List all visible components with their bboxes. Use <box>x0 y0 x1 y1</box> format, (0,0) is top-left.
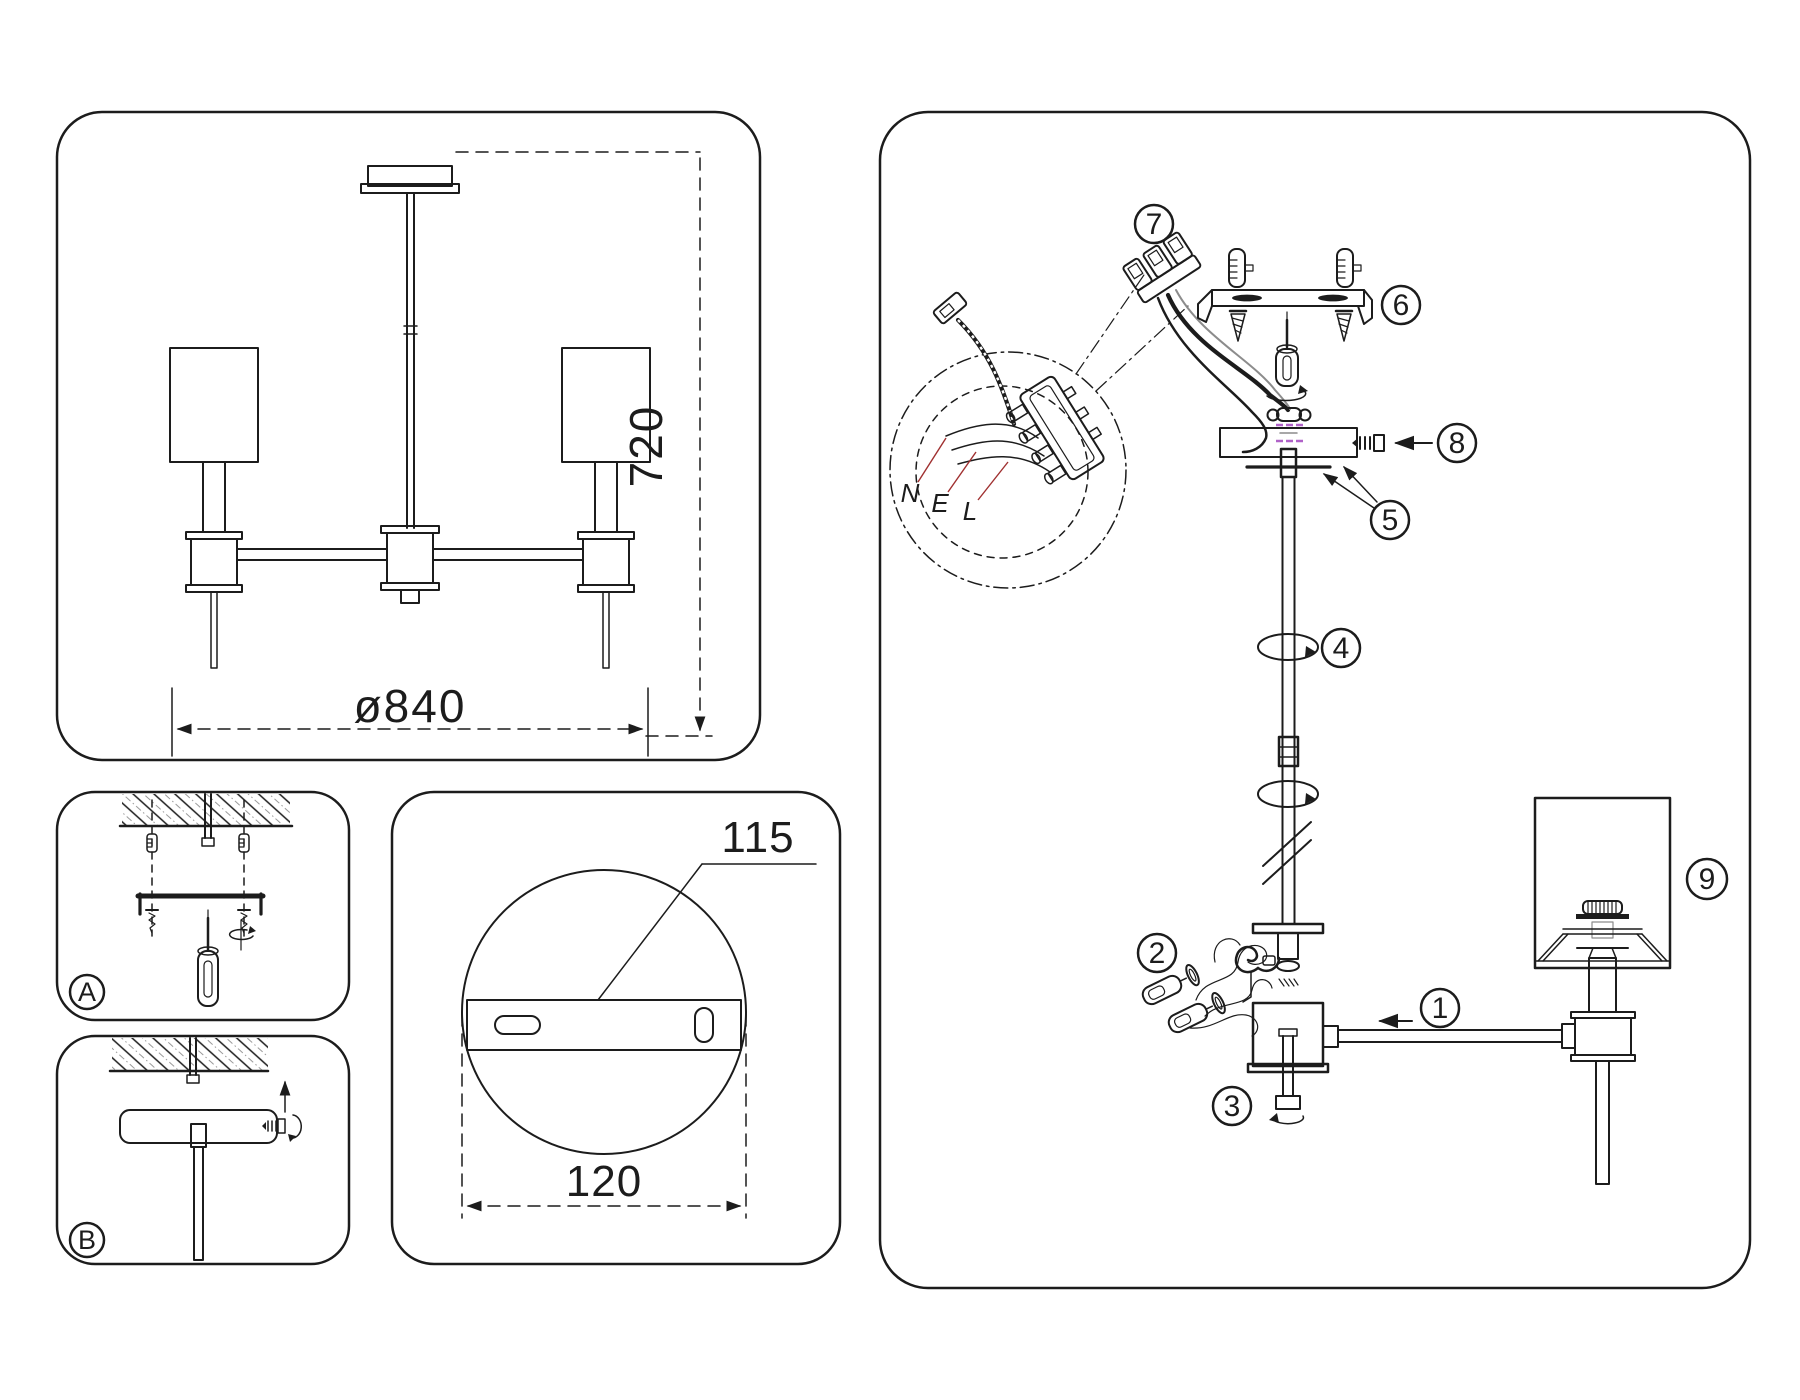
wall-anchor-icon <box>147 834 157 852</box>
hanger-rod: 4 <box>1253 478 1360 986</box>
dimension-height: 720 <box>456 152 712 736</box>
callout-2-label: 2 <box>1149 937 1166 970</box>
detail-circle-inner <box>916 386 1088 558</box>
side-screw-icon <box>262 1115 301 1142</box>
arm-connector <box>1562 1024 1575 1048</box>
hub-bolt <box>1276 1096 1300 1109</box>
lamp-shade-left <box>170 348 258 462</box>
callout-1-label: 1 <box>1432 992 1449 1025</box>
slot-hole-left <box>495 1016 540 1034</box>
rotation-arrow-icon <box>1258 781 1318 807</box>
rod-break <box>1263 822 1311 866</box>
step-b-label: B <box>78 1225 96 1255</box>
callout-3-label: 3 <box>1224 1090 1241 1123</box>
callout-9-label: 9 <box>1699 863 1716 896</box>
canopy-group <box>1220 425 1357 477</box>
rotation-arrow-icon <box>1258 634 1318 660</box>
callout-7-label: 7 <box>1146 208 1163 241</box>
arm-junction-right <box>583 539 629 585</box>
ceiling-hook-pin <box>202 838 214 846</box>
arm-connector <box>1323 1026 1338 1047</box>
wall-anchor-icon <box>1337 249 1361 287</box>
dim-bracket-label: 115 <box>721 813 794 862</box>
ceiling-bracket-group: 6 <box>1198 249 1420 401</box>
step-b-badge: B <box>70 1223 104 1257</box>
terminal-block-icon: 7 <box>1122 205 1202 303</box>
callout-5-label: 5 <box>1382 504 1399 537</box>
canopy-screw-group: 8 <box>1352 424 1476 462</box>
slot-hole-right <box>695 1008 713 1042</box>
panel-assembly: N E L 7 <box>880 112 1750 1288</box>
shade-assembly: 9 <box>1535 798 1727 1184</box>
dim-plate-label: 120 <box>566 1157 642 1206</box>
lamp-socket <box>1576 901 1629 938</box>
rod-flange <box>1253 924 1323 933</box>
wire-label-neutral: N <box>901 478 920 508</box>
chandelier-front-view <box>170 166 650 668</box>
step-a-label: A <box>78 977 96 1007</box>
callout-8-label: 8 <box>1449 427 1466 460</box>
pendant-rod <box>1596 1061 1609 1184</box>
instruction-sheet: 720 ø840 <box>0 0 1800 1400</box>
canopy-icon <box>120 1110 277 1260</box>
arm-group: 1 <box>1323 989 1575 1048</box>
callout-6-label: 6 <box>1393 289 1410 322</box>
mounting-bracket-icon <box>1198 290 1372 324</box>
mounting-bar <box>467 1000 741 1050</box>
canopy-plate-bottom-view <box>462 870 746 1154</box>
hub-group: 3 <box>1213 1003 1328 1125</box>
center-hub <box>387 533 433 583</box>
dimension-diameter: ø840 <box>172 680 648 756</box>
dim-height-label: 720 <box>620 405 672 488</box>
ground-wire-icon <box>933 292 1014 424</box>
dim-diameter-label: ø840 <box>354 680 467 732</box>
rotation-arrow-icon <box>230 920 256 950</box>
ceiling-section <box>120 794 292 846</box>
panel-step-a: A <box>57 792 349 1020</box>
wiring-detail-bubble: N E L <box>890 272 1188 588</box>
dimension-bracket-115: 115 <box>598 813 816 1000</box>
wire-label-earth: E <box>931 488 949 518</box>
screw-icon <box>1230 311 1246 341</box>
panel-step-b: B <box>57 1036 349 1264</box>
panel-assembly-border <box>880 112 1750 1288</box>
socket-cylinder <box>1589 958 1616 1012</box>
stem-nut <box>1281 449 1296 477</box>
panel-overview: 720 ø840 <box>57 112 760 760</box>
pendant-rod <box>194 1147 203 1260</box>
ring-nut <box>1277 961 1299 971</box>
wall-anchor-icon <box>239 834 249 852</box>
shade-fitter <box>1538 929 1667 961</box>
wall-anchor-icon <box>1229 249 1253 287</box>
callout-4-label: 4 <box>1333 632 1350 665</box>
step-a-badge: A <box>70 975 104 1009</box>
wire-label-live: L <box>963 496 977 526</box>
wire-terminal-group: 2 <box>1138 934 1279 1037</box>
arm-junction-box <box>1571 1012 1635 1061</box>
hub-box <box>1253 1003 1323 1066</box>
canopy-pointer-group: 5 <box>1324 467 1409 539</box>
screw-icon <box>1336 311 1352 341</box>
arm-junction-left <box>191 539 237 585</box>
dimension-plate-120: 120 <box>462 1014 746 1218</box>
screwdriver-icon <box>198 910 218 1006</box>
wire-e <box>952 441 1044 456</box>
panel-mount-plate: 115 120 <box>392 792 840 1264</box>
diagram-canvas: 720 ø840 <box>0 0 1800 1400</box>
ceiling-section <box>110 1038 268 1083</box>
